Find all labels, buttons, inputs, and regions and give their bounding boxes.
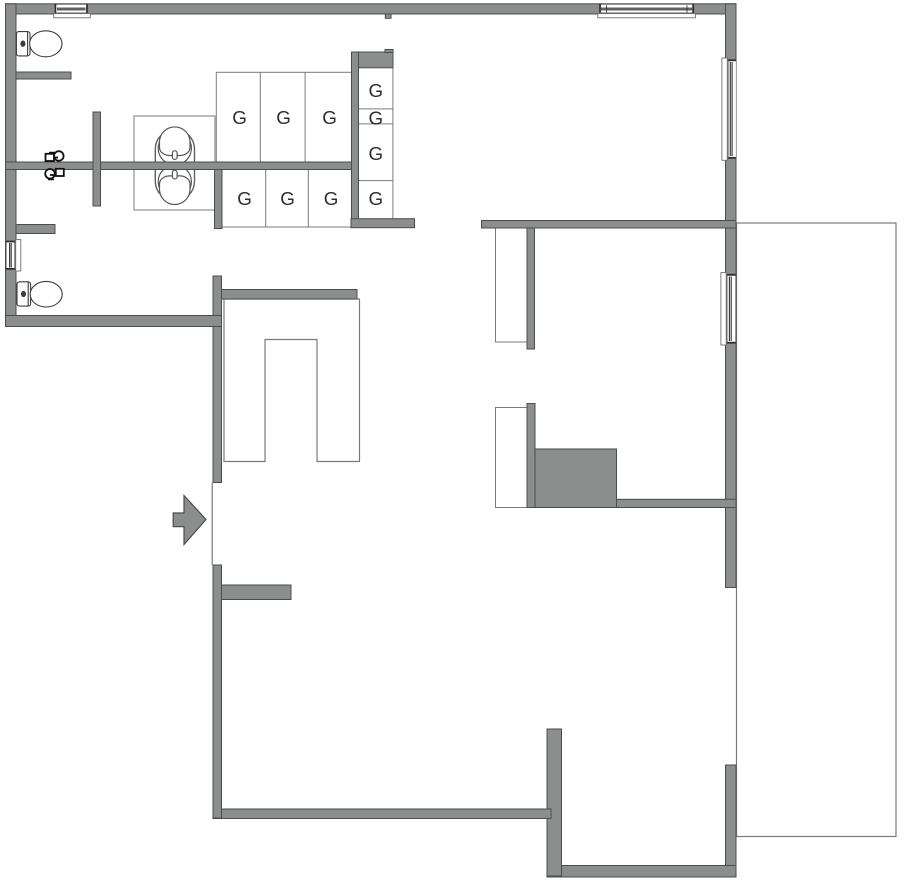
svg-text:G: G — [368, 143, 383, 164]
svg-text:G: G — [368, 80, 383, 101]
svg-text:G: G — [276, 107, 291, 128]
svg-text:G: G — [368, 188, 383, 209]
svg-text:G: G — [280, 188, 295, 209]
svg-text:G: G — [237, 188, 252, 209]
svg-text:G: G — [322, 107, 337, 128]
svg-text:G: G — [368, 107, 383, 128]
svg-text:G: G — [232, 107, 247, 128]
svg-text:G: G — [324, 188, 339, 209]
